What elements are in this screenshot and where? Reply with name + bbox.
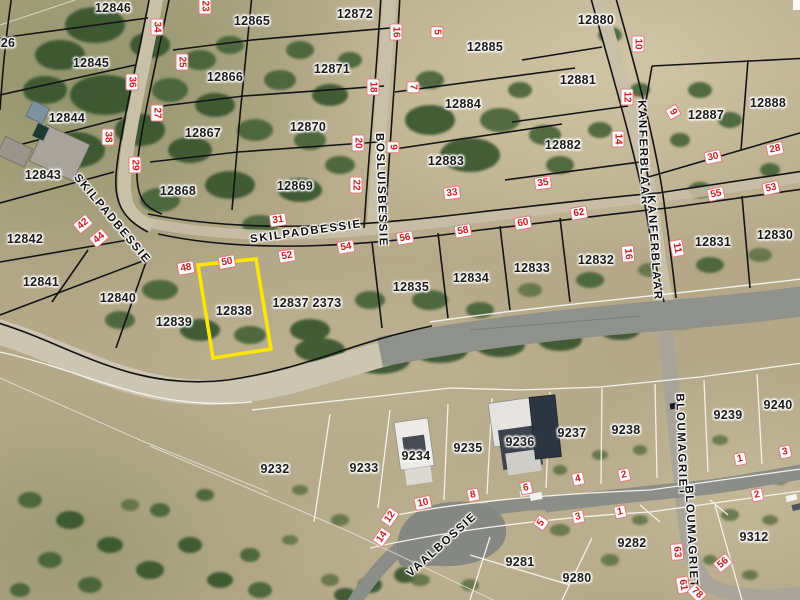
map-overlay-graphics	[0, 0, 800, 600]
house-9234	[394, 418, 437, 486]
highlighted-parcel-outline[interactable]	[198, 259, 271, 358]
aerial-map-view[interactable]: 2612846128651287212880128851284512866128…	[0, 0, 800, 600]
